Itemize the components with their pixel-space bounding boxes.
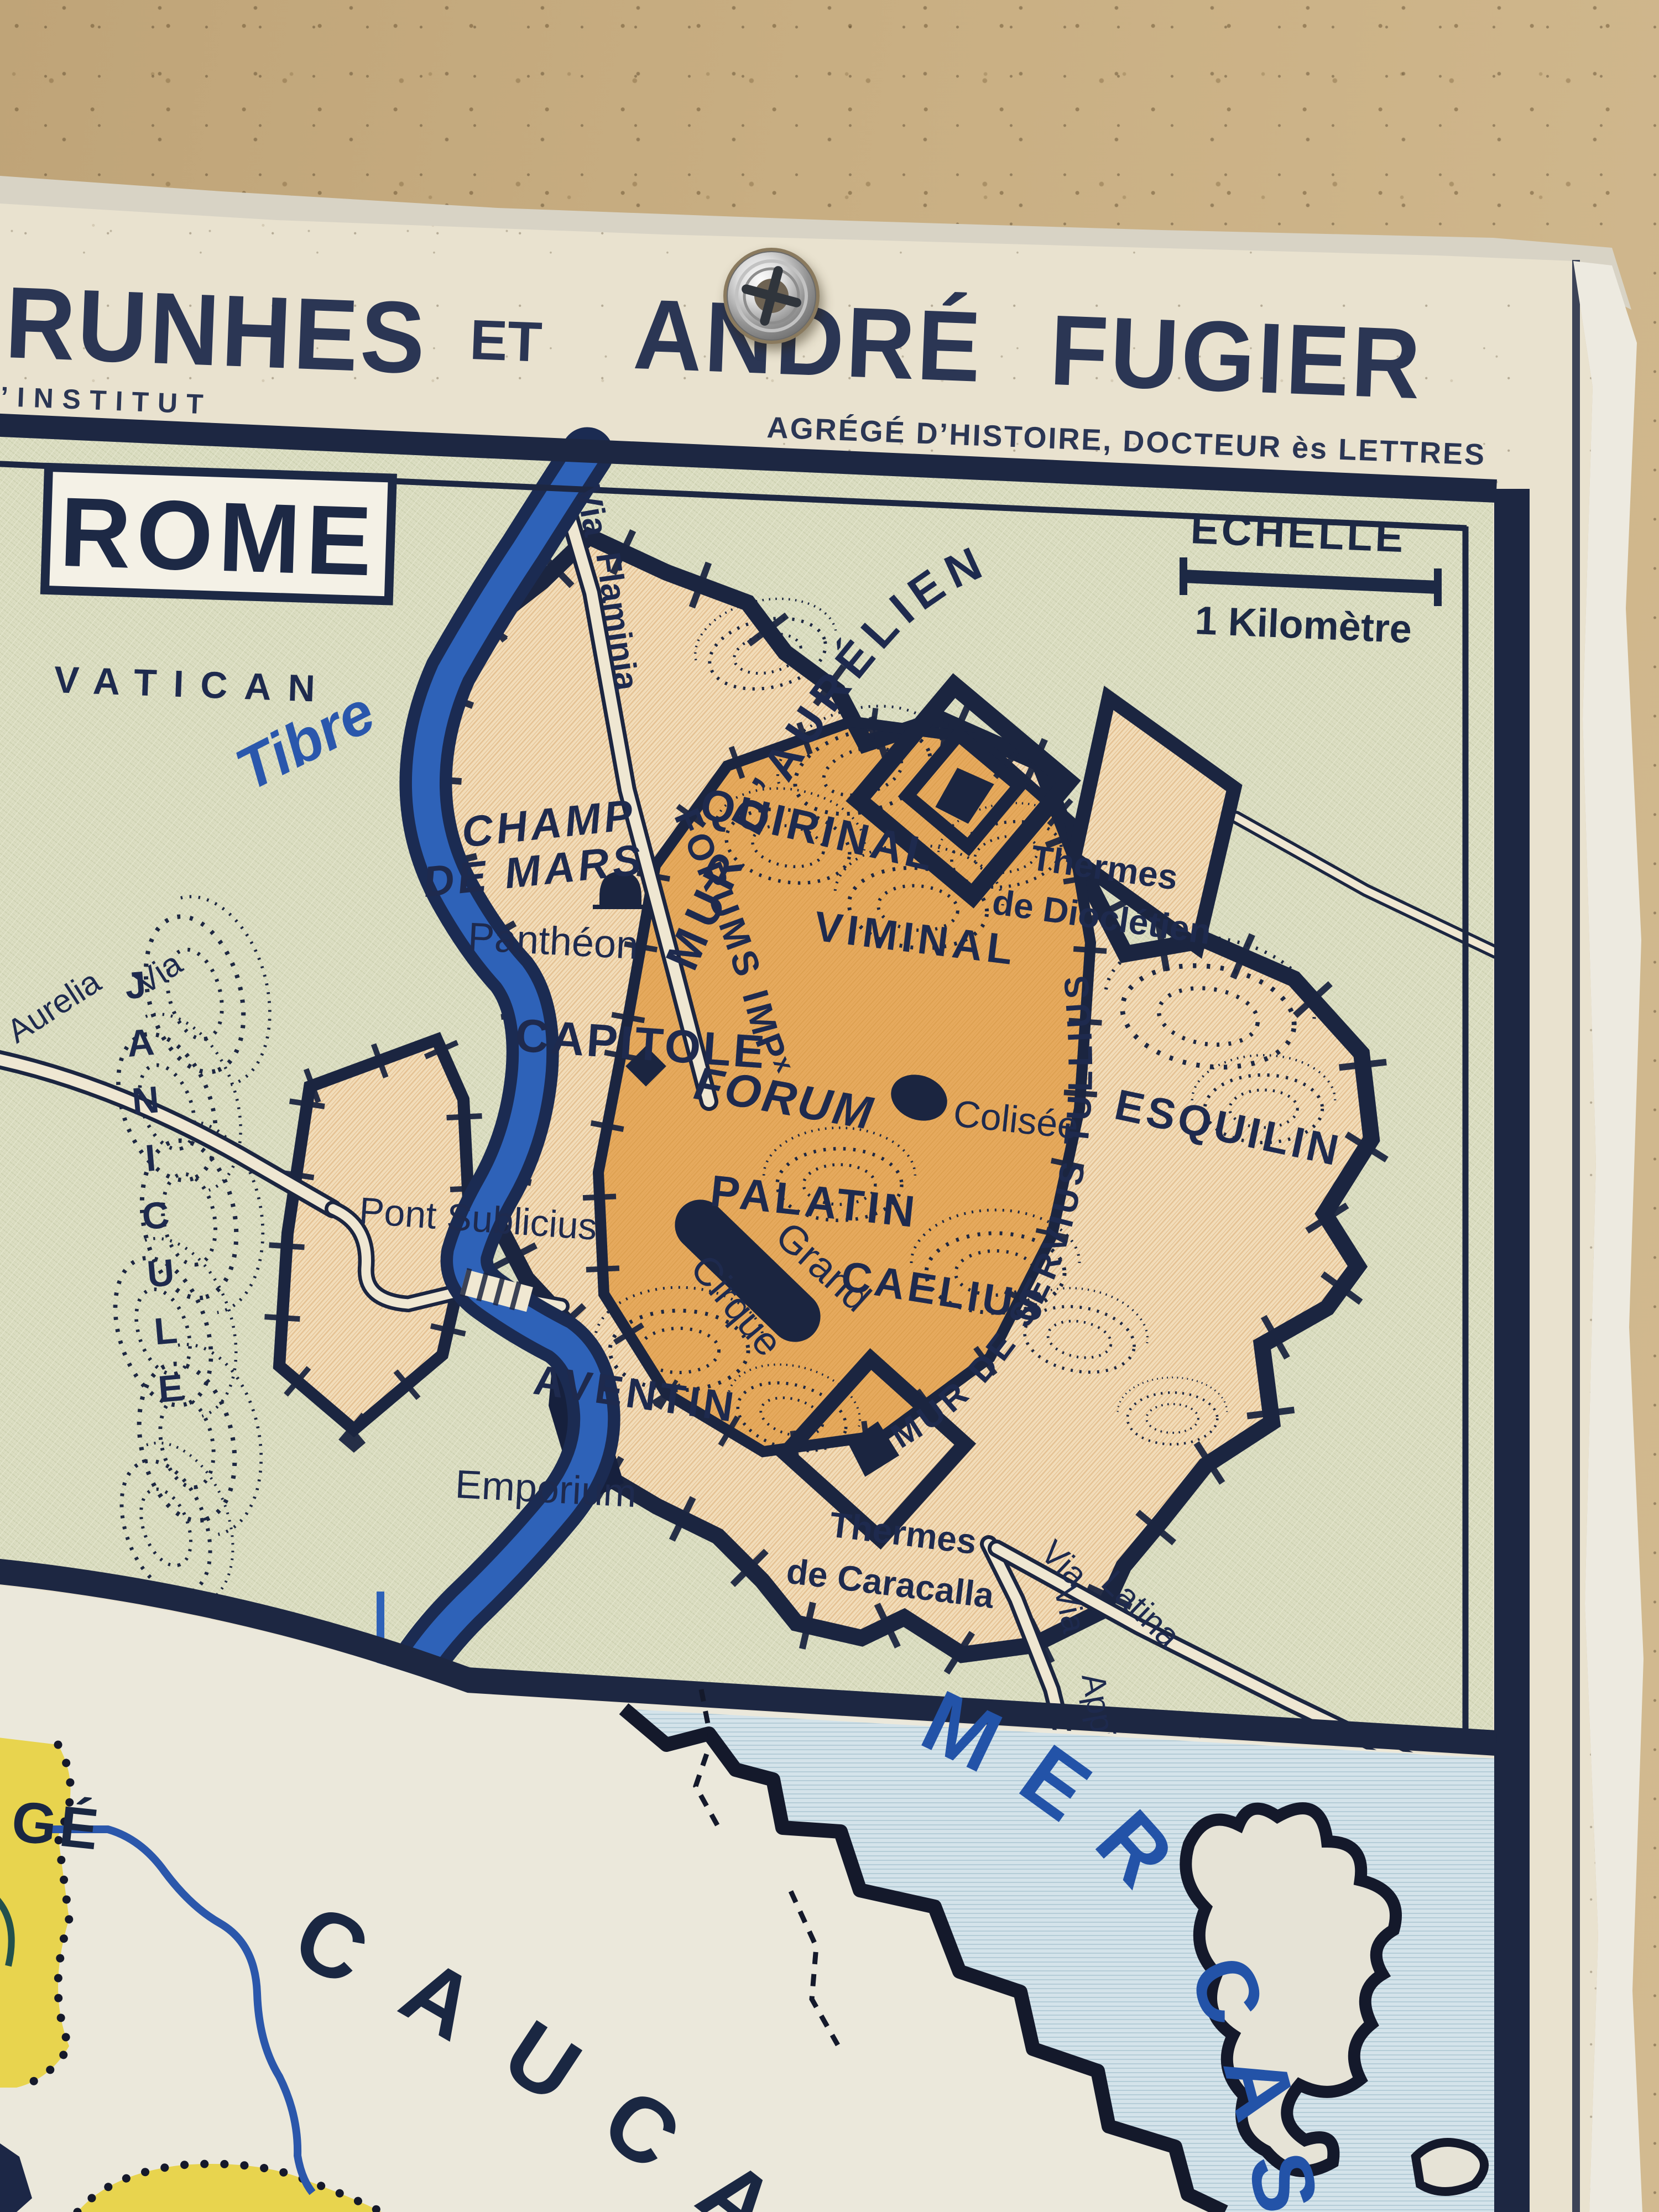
- scale-value: 1 Kilomètre: [1194, 598, 1412, 651]
- wall-screw-pin: [722, 247, 821, 345]
- inset-title-box: ROME: [45, 467, 393, 601]
- scale-title: ECHELLE: [1190, 505, 1407, 561]
- inset-title: ROME: [58, 477, 379, 597]
- label-ge-fragment: GÉ: [9, 1790, 105, 1863]
- label-pantheon: Panthéon: [467, 915, 639, 968]
- yellow-territory-west: [0, 1736, 71, 2088]
- pont-sublicius-bridge: [463, 1282, 530, 1300]
- island: [1416, 2142, 1484, 2192]
- map-artwork: ECHELLE 1 Kilomètre ROME VATICAN Tibre V…: [0, 0, 1659, 2212]
- photographed-wall-map: { "header": { "title_fragment": "RUNHES"…: [0, 0, 1659, 2212]
